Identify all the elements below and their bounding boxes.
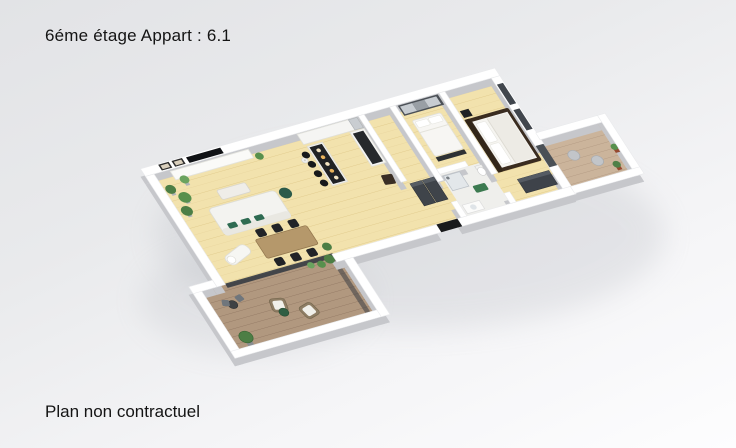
page-title: 6éme étage Appart : 6.1 xyxy=(45,26,231,46)
disclaimer-text: Plan non contractuel xyxy=(45,402,200,422)
floor-plan-3d xyxy=(0,0,736,448)
